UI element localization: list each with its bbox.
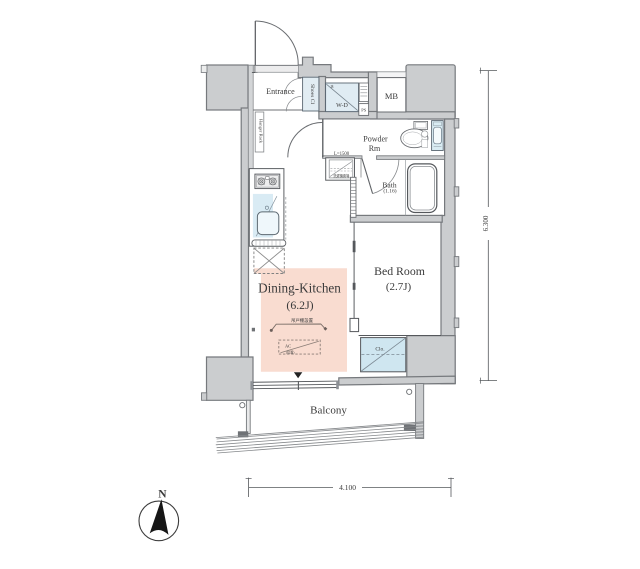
svg-text:Dining-Kitchen: Dining-Kitchen — [258, 281, 341, 296]
svg-text:Clo.: Clo. — [375, 347, 385, 353]
svg-text:PS: PS — [361, 108, 367, 113]
svg-text:Powder: Powder — [363, 135, 388, 144]
svg-text:(6.2J): (6.2J) — [286, 298, 313, 312]
svg-text:N: N — [158, 488, 167, 500]
svg-text:4.100: 4.100 — [339, 483, 356, 492]
svg-text:AC: AC — [285, 343, 291, 348]
svg-text:6.300: 6.300 — [482, 215, 490, 231]
svg-text:W-D: W-D — [336, 103, 348, 109]
svg-text:L=1500: L=1500 — [334, 152, 350, 157]
svg-text:Bed Room: Bed Room — [374, 264, 425, 278]
svg-text:Hanger Rack: Hanger Rack — [258, 119, 263, 144]
svg-text:(1.16): (1.16) — [383, 188, 396, 195]
svg-text:吊戸棚設置: 吊戸棚設置 — [291, 317, 314, 324]
svg-text:洗: 洗 — [331, 83, 334, 88]
svg-text:Shoes Cl: Shoes Cl — [309, 84, 315, 104]
svg-text:MB: MB — [385, 91, 399, 101]
svg-text:Rm: Rm — [369, 144, 381, 153]
svg-text:Balcony: Balcony — [310, 404, 347, 416]
svg-text:洗濯機置場: 洗濯機置場 — [333, 173, 350, 178]
svg-text:Entrance: Entrance — [266, 87, 295, 96]
svg-text:(位置): (位置) — [286, 350, 295, 355]
svg-text:(2.7J): (2.7J) — [386, 281, 412, 293]
